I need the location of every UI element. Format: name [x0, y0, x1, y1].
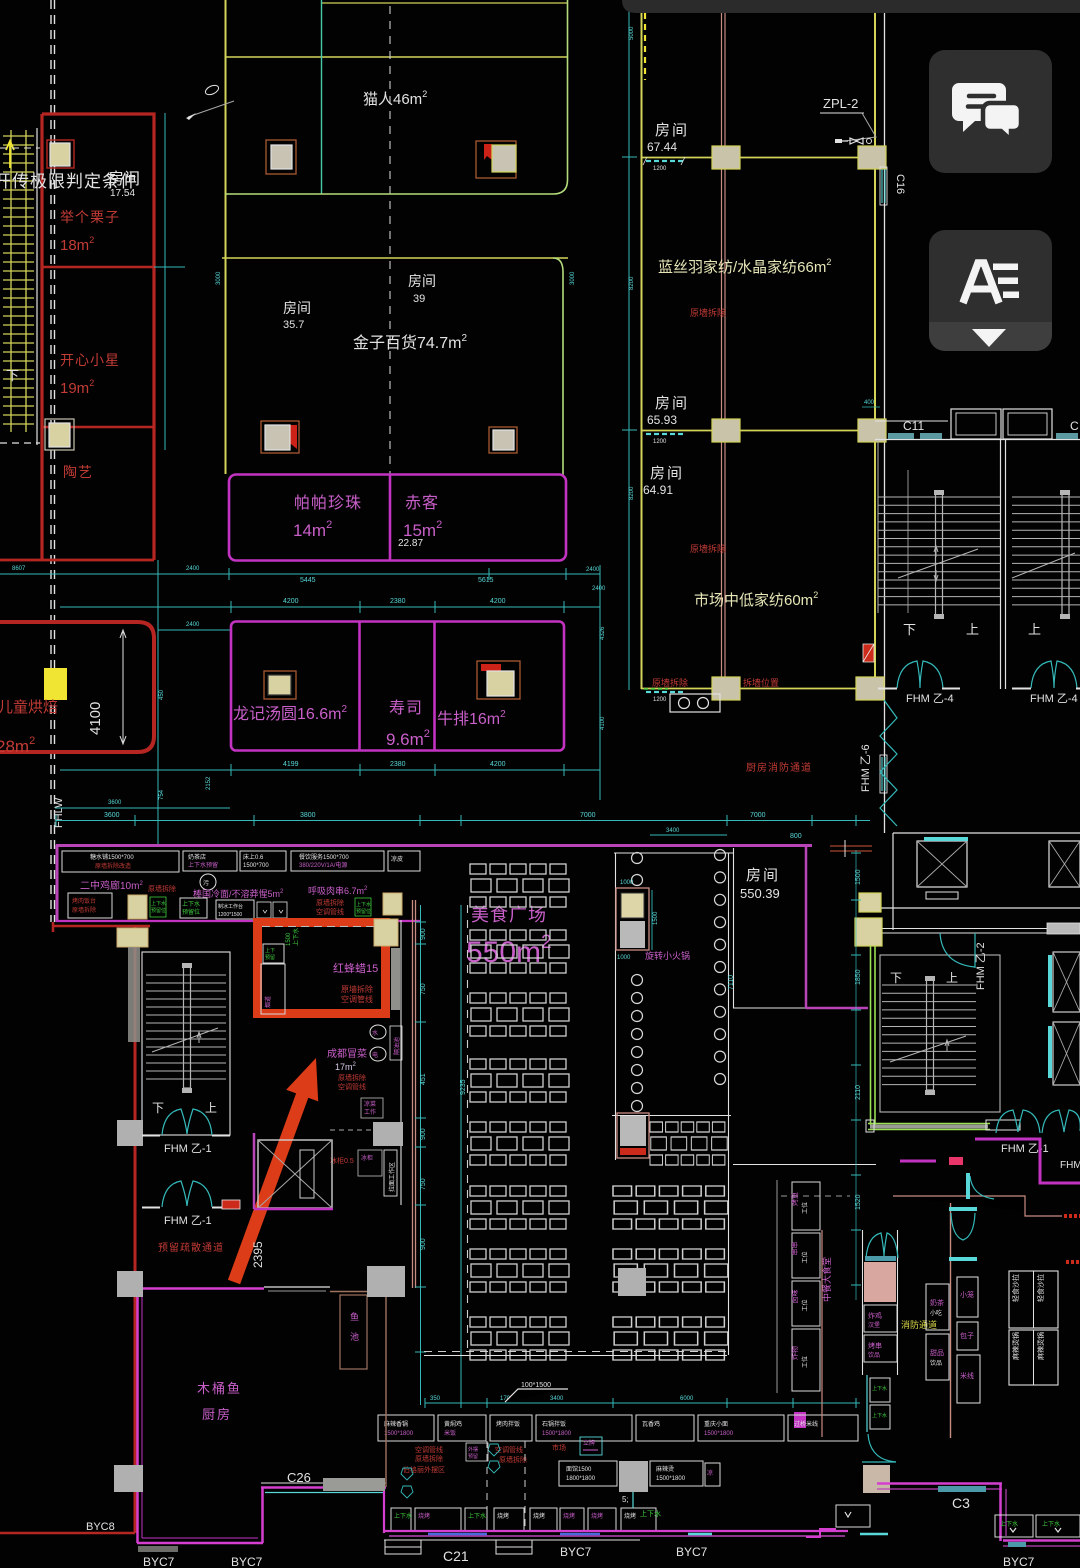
svg-text:二中鸡廊10m2: 二中鸡廊10m2: [80, 879, 143, 892]
svg-text:预留: 预留: [265, 954, 275, 961]
svg-text:BYC7: BYC7: [676, 1545, 708, 1559]
svg-text:1500*1800: 1500*1800: [384, 1431, 414, 1437]
svg-text:39: 39: [413, 293, 425, 305]
svg-text:4100: 4100: [87, 702, 104, 735]
svg-text:FHM 乙-1: FHM 乙-1: [1001, 1142, 1049, 1155]
svg-text:1200: 1200: [653, 439, 667, 445]
svg-text:预留位: 预留位: [151, 907, 166, 914]
svg-text:麻辣烫锅: 麻辣烫锅: [1036, 1332, 1045, 1360]
svg-text:8607: 8607: [12, 566, 26, 572]
svg-text:举个栗子: 举个栗子: [60, 209, 120, 225]
svg-text:麻辣香锅: 麻辣香锅: [384, 1420, 408, 1428]
svg-text:FHM 乙-1: FHM 乙-1: [164, 1142, 212, 1155]
svg-text:64.91: 64.91: [643, 483, 673, 497]
svg-text:上下水: 上下水: [1042, 1520, 1060, 1528]
svg-text:1000: 1000: [620, 880, 634, 886]
svg-text:米饭: 米饭: [444, 1429, 456, 1437]
svg-text:凉: 凉: [707, 1469, 713, 1477]
svg-text:饮品: 饮品: [868, 1351, 880, 1359]
svg-text:4100: 4100: [600, 716, 606, 730]
svg-text:上下水: 上下水: [356, 901, 371, 908]
svg-text:2400: 2400: [592, 586, 606, 592]
svg-text:C: C: [1070, 419, 1079, 433]
svg-text:水: 水: [372, 1029, 378, 1037]
svg-text:7110: 7110: [728, 975, 735, 990]
svg-text:预留位: 预留位: [356, 908, 371, 915]
svg-text:烧烤: 烧烤: [418, 1512, 430, 1520]
svg-text:龙记汤圆16.6m2: 龙记汤圆16.6m2: [233, 704, 347, 723]
svg-text:4200: 4200: [490, 598, 506, 605]
svg-text:瓦香鸡: 瓦香鸡: [642, 1420, 660, 1428]
svg-text:烟道: 烟道: [264, 996, 272, 1008]
svg-text:1520: 1520: [855, 1194, 862, 1210]
svg-text:污: 污: [203, 879, 209, 887]
svg-text:3600: 3600: [104, 812, 120, 819]
svg-text:1800*1800: 1800*1800: [566, 1476, 596, 1482]
svg-text:上: 上: [946, 971, 958, 985]
svg-text:1500*1800: 1500*1800: [656, 1476, 686, 1482]
svg-text:ZPL-2: ZPL-2: [823, 96, 858, 111]
svg-text:8200: 8200: [629, 276, 635, 290]
svg-text:2380: 2380: [390, 761, 406, 768]
svg-text:旋转小火锅: 旋转小火锅: [645, 950, 690, 961]
svg-text:3400: 3400: [550, 1396, 564, 1402]
svg-text:下: 下: [152, 1101, 164, 1115]
svg-text:上下水: 上下水: [872, 1385, 887, 1392]
svg-text:甜品: 甜品: [930, 1348, 944, 1357]
svg-text:冰柜: 冰柜: [361, 1154, 373, 1162]
svg-text:BYC8: BYC8: [86, 1521, 115, 1533]
svg-text:100*1500: 100*1500: [521, 1382, 551, 1389]
svg-text:上下水: 上下水: [394, 1512, 412, 1520]
svg-text:牛排16m2: 牛排16m2: [437, 709, 506, 728]
svg-text:4326: 4326: [600, 626, 606, 640]
svg-text:饮品: 饮品: [930, 1359, 942, 1367]
svg-text:上下水: 上下水: [872, 1412, 887, 1419]
svg-text:帕帕珍珠: 帕帕珍珠: [294, 494, 362, 512]
svg-text:房间: 房间: [283, 300, 311, 316]
svg-text:成都冒菜: 成都冒菜: [327, 1048, 367, 1060]
svg-text:鱼: 鱼: [350, 1311, 359, 1322]
svg-text:凉菜: 凉菜: [364, 1100, 376, 1108]
svg-text:美食广场: 美食广场: [471, 905, 547, 925]
svg-text:开心小星: 开心小星: [60, 352, 120, 368]
svg-text:餐饮服务1500*700: 餐饮服务1500*700: [299, 853, 349, 861]
svg-text:下: 下: [890, 971, 902, 985]
svg-text:900: 900: [420, 928, 427, 940]
svg-text:预留: 预留: [468, 1453, 478, 1460]
svg-text:C21: C21: [443, 1548, 469, 1564]
svg-text:原墙拆除: 原墙拆除: [499, 1455, 527, 1464]
svg-text:22.87: 22.87: [398, 538, 423, 549]
svg-text:800: 800: [790, 833, 802, 840]
svg-text:房间: 房间: [655, 122, 689, 139]
svg-text:5445: 5445: [300, 577, 316, 584]
svg-text:麻辣烫锅: 麻辣烫锅: [1011, 1332, 1020, 1360]
svg-text:9.6m2: 9.6m2: [386, 728, 430, 749]
svg-text:FHLW: FHLW: [53, 797, 65, 828]
svg-text:凉皮: 凉皮: [391, 855, 403, 863]
svg-text:蓝丝羽家纺/水晶家纺66m2: 蓝丝羽家纺/水晶家纺66m2: [658, 257, 831, 276]
svg-text:9235: 9235: [460, 1079, 467, 1095]
svg-text:1200: 1200: [653, 697, 667, 703]
svg-text:市场: 市场: [552, 1443, 566, 1452]
svg-text:65.93: 65.93: [647, 413, 677, 427]
svg-text:4200: 4200: [283, 598, 299, 605]
svg-text:原墙拆除: 原墙拆除: [341, 984, 373, 994]
svg-text:C26: C26: [287, 1470, 311, 1485]
svg-text:房间: 房间: [408, 273, 436, 289]
svg-text:754: 754: [159, 789, 165, 800]
svg-text:石锅拌饭: 石锅拌饭: [542, 1420, 566, 1428]
svg-text:消防通道: 消防通道: [901, 1319, 937, 1330]
svg-text:原墙拆除: 原墙拆除: [72, 906, 96, 914]
svg-text:7000: 7000: [580, 812, 596, 819]
svg-text:炸鸡: 炸鸡: [868, 1311, 882, 1320]
svg-text:轻食沙拉: 轻食沙拉: [1011, 1274, 1020, 1302]
svg-text:寿司: 寿司: [389, 699, 423, 717]
svg-text:空调管线: 空调管线: [316, 907, 344, 916]
svg-text:轻食沙拉: 轻食沙拉: [1036, 1274, 1045, 1302]
svg-text:烧烤: 烧烤: [533, 1512, 545, 1520]
svg-text:2152: 2152: [206, 776, 212, 790]
svg-text:原墙拆除改造: 原墙拆除改造: [95, 862, 131, 870]
svg-text:450: 450: [159, 689, 165, 700]
svg-text:糖水铺1500*700: 糖水铺1500*700: [90, 853, 134, 861]
svg-text:棒国冷面/不溶莽惺5m2: 棒国冷面/不溶莽惺5m2: [193, 888, 284, 899]
svg-text:3000: 3000: [216, 271, 222, 285]
svg-text:原墙拆除: 原墙拆除: [338, 1073, 366, 1082]
svg-text:工位: 工位: [801, 1251, 809, 1263]
svg-text:陶艺: 陶艺: [63, 464, 93, 480]
svg-text:池: 池: [350, 1331, 359, 1342]
svg-text:过桥米线: 过桥米线: [794, 1420, 818, 1428]
svg-text:黄焖鸡: 黄焖鸡: [444, 1420, 462, 1428]
svg-text:19m2: 19m2: [60, 378, 94, 397]
svg-text:床上0.6: 床上0.6: [243, 853, 264, 861]
svg-text:汉堡: 汉堡: [868, 1321, 880, 1329]
svg-text:呼吸肉串6.7m2: 呼吸肉串6.7m2: [308, 885, 368, 896]
svg-text:1200: 1200: [653, 166, 667, 172]
svg-text:立牌: 立牌: [583, 1439, 595, 1447]
svg-text:麻辣烫: 麻辣烫: [656, 1465, 674, 1473]
svg-text:350: 350: [430, 1396, 441, 1402]
svg-text:上: 上: [1028, 622, 1041, 637]
svg-text:FHM 乙-2: FHM 乙-2: [974, 942, 987, 990]
svg-text:FHM 乙-1: FHM 乙-1: [164, 1214, 212, 1227]
svg-text:C11: C11: [903, 419, 924, 433]
svg-text:上下: 上下: [265, 947, 275, 954]
svg-text:小笼: 小笼: [960, 1290, 974, 1299]
svg-text:烧烤: 烧烤: [497, 1512, 509, 1520]
svg-text:烧烤: 烧烤: [591, 1512, 603, 1520]
svg-text:8200: 8200: [629, 486, 635, 500]
svg-text:奶茶店: 奶茶店: [188, 853, 206, 861]
svg-text:预留位: 预留位: [182, 908, 200, 916]
svg-text:2400: 2400: [586, 567, 600, 573]
svg-text:房间: 房间: [650, 465, 684, 482]
svg-text:房间: 房间: [108, 170, 140, 188]
svg-text:原墙拆除: 原墙拆除: [690, 543, 726, 554]
svg-text:2380: 2380: [390, 598, 406, 605]
svg-text:工位: 工位: [801, 1202, 809, 1214]
svg-text:烤肉饭台: 烤肉饭台: [72, 897, 96, 905]
svg-text:35.7: 35.7: [283, 319, 304, 331]
svg-text:房间: 房间: [655, 395, 689, 412]
svg-text:原墙拆除: 原墙拆除: [316, 898, 344, 907]
svg-text:空调管线: 空调管线: [415, 1445, 443, 1454]
svg-text:重庆小面: 重庆小面: [704, 1420, 728, 1428]
svg-text:面馆1500: 面馆1500: [566, 1465, 592, 1473]
svg-text:市场中低家纺60m2: 市场中低家纺60m2: [694, 590, 818, 609]
svg-text:奶茶: 奶茶: [930, 1298, 944, 1307]
svg-text:550.39: 550.39: [740, 886, 780, 901]
svg-text:5;: 5;: [622, 1495, 629, 1504]
svg-text:1500*1800: 1500*1800: [704, 1431, 734, 1437]
svg-text:FHM: FHM: [1060, 1160, 1080, 1171]
svg-text:厨房: 厨房: [202, 1407, 232, 1422]
svg-text:原墙拆除: 原墙拆除: [415, 1454, 443, 1463]
svg-text:上下水: 上下水: [182, 900, 200, 908]
svg-text:上下水: 上下水: [292, 928, 300, 946]
svg-text:赤客: 赤客: [405, 494, 439, 512]
svg-text:上: 上: [205, 1101, 217, 1115]
svg-text:包子: 包子: [960, 1331, 974, 1340]
svg-text:1200*1500: 1200*1500: [218, 912, 242, 918]
svg-text:木桶鱼: 木桶鱼: [197, 1381, 242, 1396]
svg-text:400: 400: [864, 400, 875, 406]
svg-text:烤串: 烤串: [868, 1341, 882, 1350]
svg-text:下: 下: [903, 622, 916, 637]
svg-text:BYC7: BYC7: [143, 1555, 175, 1568]
svg-text:5615: 5615: [478, 577, 494, 584]
svg-text:FHM 乙-6: FHM 乙-6: [859, 744, 872, 792]
svg-text:451: 451: [420, 1073, 427, 1085]
svg-text:BYC7: BYC7: [560, 1545, 592, 1559]
svg-text:猫人46m2: 猫人46m2: [363, 89, 427, 108]
svg-text:上下水: 上下水: [1000, 1520, 1018, 1528]
svg-text:900: 900: [420, 1128, 427, 1140]
svg-text:工位: 工位: [801, 1299, 809, 1311]
svg-text:拉面工作区: 拉面工作区: [388, 1162, 396, 1192]
svg-text:烧烤: 烧烤: [624, 1512, 636, 1520]
svg-text:小吃: 小吃: [930, 1309, 942, 1317]
svg-text:67.44: 67.44: [647, 140, 677, 154]
svg-text:380/220V/1A/电源: 380/220V/1A/电源: [299, 861, 347, 869]
svg-text:6000: 6000: [680, 1396, 694, 1402]
svg-text:冰柜0.5: 冰柜0.5: [330, 1156, 354, 1165]
svg-text:C16: C16: [894, 174, 906, 194]
svg-text:伯格丽外摆区: 伯格丽外摆区: [403, 1465, 445, 1474]
svg-text:儿童烘焙: 儿童烘焙: [0, 698, 58, 716]
svg-text:3800: 3800: [300, 812, 316, 819]
svg-text:厨房消防通道: 厨房消防通道: [746, 761, 812, 774]
svg-text:上下水: 上下水: [151, 900, 166, 907]
svg-text:1500: 1500: [653, 911, 659, 925]
svg-text:上: 上: [966, 622, 979, 637]
svg-text:烤肉拌饭: 烤肉拌饭: [496, 1420, 520, 1428]
svg-text:原墙拆除: 原墙拆除: [690, 307, 726, 318]
svg-text:4200: 4200: [490, 761, 506, 768]
svg-text:1500*700: 1500*700: [243, 863, 269, 869]
svg-text:制冰工作台: 制冰工作台: [218, 903, 243, 910]
svg-text:中餐大食堂: 中餐大食堂: [821, 1257, 832, 1302]
svg-text:烧烤: 烧烤: [563, 1512, 575, 1520]
svg-text:3000: 3000: [570, 271, 576, 285]
svg-text:预留疏散通道: 预留疏散通道: [158, 1241, 224, 1254]
svg-text:红蜂蜡15: 红蜂蜡15: [333, 961, 378, 975]
svg-text:电: 电: [372, 1051, 378, 1059]
svg-text:外摆: 外摆: [468, 1446, 478, 1453]
svg-text:工作: 工作: [364, 1108, 376, 1116]
svg-text:5000: 5000: [629, 26, 635, 40]
svg-text:1500: 1500: [286, 932, 292, 946]
svg-text:上下水预留: 上下水预留: [188, 861, 218, 869]
svg-text:拆墙位置: 拆墙位置: [743, 677, 779, 688]
svg-text:2400: 2400: [186, 566, 200, 572]
svg-text:BYC7: BYC7: [1003, 1555, 1035, 1568]
svg-text:1500: 1500: [855, 869, 862, 885]
svg-text:金子百货74.7m2: 金子百货74.7m2: [353, 333, 467, 352]
svg-text:C3: C3: [952, 1495, 970, 1511]
svg-text:3400: 3400: [666, 828, 680, 834]
svg-text:750: 750: [420, 1178, 427, 1190]
svg-text:卤味: 卤味: [790, 1290, 799, 1304]
svg-text:750: 750: [420, 983, 427, 995]
svg-text:1500*1800: 1500*1800: [542, 1431, 572, 1437]
svg-text:18m2: 18m2: [60, 235, 94, 254]
svg-text:炸物: 炸物: [790, 1346, 799, 1360]
svg-text:2110: 2110: [855, 1085, 862, 1100]
svg-text:17.54: 17.54: [110, 188, 135, 199]
svg-text:上下水: 上下水: [468, 1512, 486, 1520]
svg-text:空调管线: 空调管线: [341, 994, 373, 1004]
svg-text:4199: 4199: [283, 761, 299, 768]
svg-text:原墙拆除: 原墙拆除: [148, 884, 176, 893]
svg-text:BYC7: BYC7: [231, 1555, 263, 1568]
svg-text:下: 下: [6, 368, 19, 383]
svg-text:FHM 乙-4: FHM 乙-4: [906, 692, 954, 705]
svg-text:上下水: 上下水: [640, 1509, 661, 1518]
svg-text:米线: 米线: [960, 1371, 974, 1380]
svg-text:1850: 1850: [855, 969, 862, 985]
svg-text:空调管线: 空调管线: [338, 1082, 366, 1091]
svg-text:串串: 串串: [791, 1242, 799, 1256]
svg-text:2400: 2400: [186, 622, 200, 628]
svg-text:烤鱼: 烤鱼: [790, 1192, 799, 1206]
svg-text:1000: 1000: [617, 955, 631, 961]
svg-text:原墙拆除: 原墙拆除: [652, 677, 688, 688]
svg-text:房间: 房间: [746, 867, 780, 884]
svg-text:工位: 工位: [801, 1356, 809, 1368]
svg-text:900: 900: [420, 1238, 427, 1250]
svg-text:2395: 2395: [251, 1241, 265, 1268]
svg-text:隔油池: 隔油池: [393, 1037, 401, 1055]
svg-text:3600: 3600: [108, 800, 122, 806]
svg-text:7000: 7000: [750, 812, 766, 819]
svg-text:FHM 乙-4: FHM 乙-4: [1030, 692, 1078, 705]
